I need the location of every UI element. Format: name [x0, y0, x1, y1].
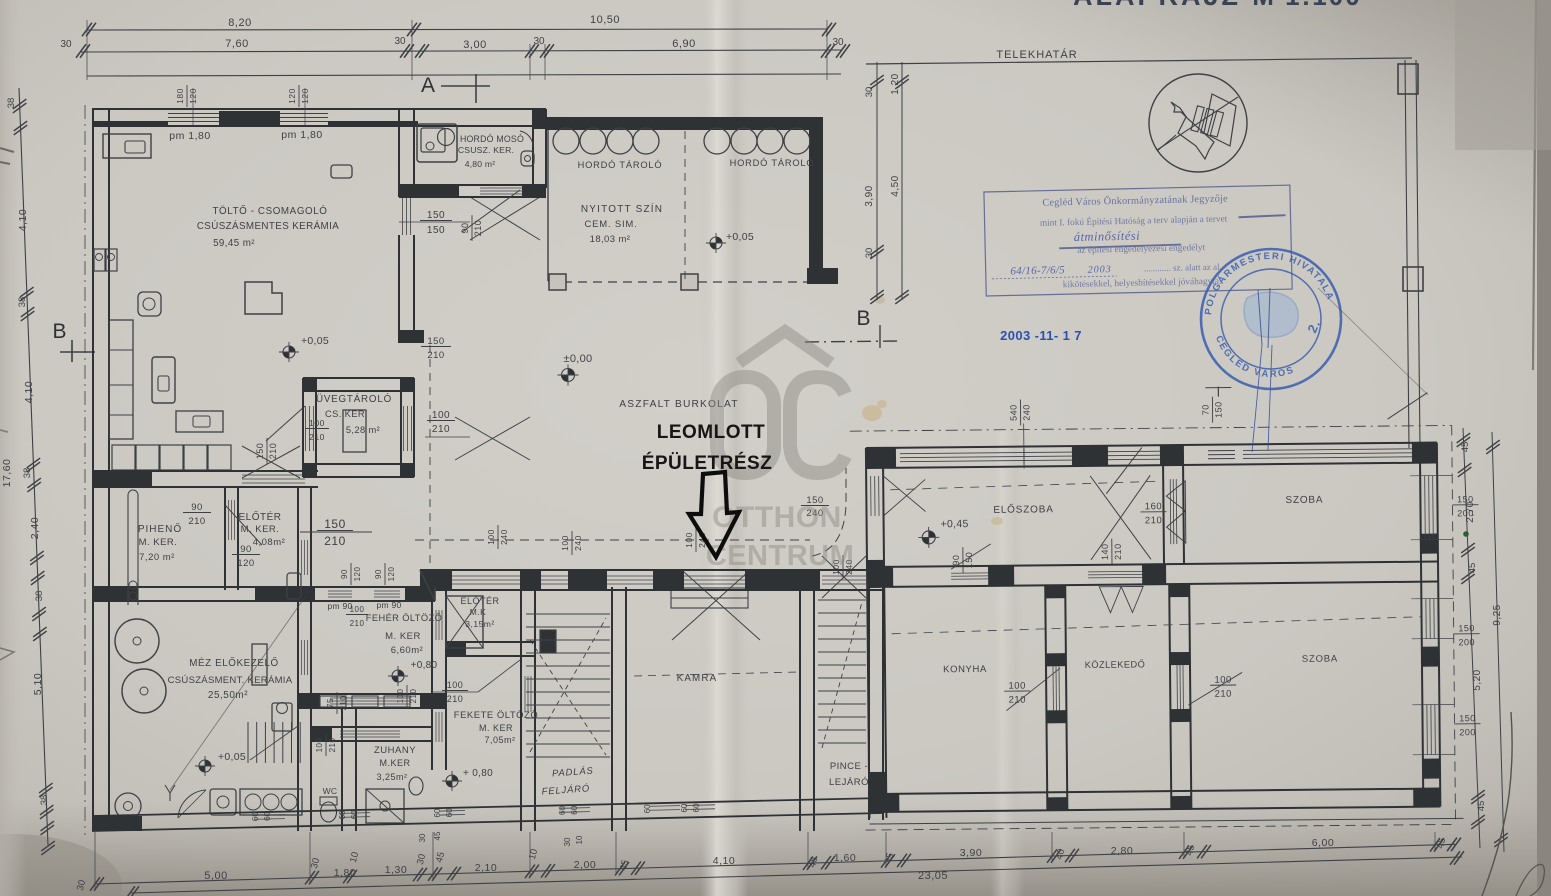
svg-text:100: 100	[309, 418, 325, 428]
svg-text:............ sz. alatt az al: ............ sz. alatt az al	[1144, 262, 1220, 274]
svg-text:átminősítési: átminősítési	[1074, 228, 1141, 244]
svg-text:2003 -11- 1 7: 2003 -11- 1 7	[1000, 328, 1082, 343]
svg-text:2003: 2003	[1088, 264, 1112, 276]
svg-text:60: 60	[643, 804, 652, 813]
svg-text:30: 30	[864, 87, 875, 98]
svg-text:210: 210	[188, 516, 205, 527]
svg-text:60: 60	[445, 808, 454, 817]
svg-text:60: 60	[558, 806, 567, 815]
svg-text:ALAPRAJZ: ALAPRAJZ	[1073, 0, 1241, 11]
svg-text:CENTRUM: CENTRUM	[706, 540, 855, 572]
svg-text:WC: WC	[323, 786, 338, 796]
svg-text:100: 100	[432, 410, 450, 421]
svg-text:120: 120	[237, 558, 254, 569]
svg-text:5,28 m²: 5,28 m²	[346, 425, 380, 435]
svg-text:38: 38	[22, 468, 33, 479]
svg-text:6,00: 6,00	[1312, 837, 1334, 849]
svg-text:TÖLTŐ - CSOMAGOLÓ: TÖLTŐ - CSOMAGOLÓ	[212, 206, 327, 217]
svg-text:100: 100	[560, 535, 570, 551]
svg-text:7,05m²: 7,05m²	[484, 735, 515, 745]
svg-text:+0,80: +0,80	[411, 660, 438, 671]
svg-text:4,50: 4,50	[890, 175, 901, 196]
svg-text:CS. KER: CS. KER	[325, 409, 365, 419]
svg-text:210: 210	[309, 432, 325, 442]
svg-text:30: 30	[533, 36, 545, 47]
svg-text:45: 45	[433, 831, 442, 840]
svg-text:100: 100	[396, 689, 405, 704]
svg-text:100: 100	[684, 532, 694, 548]
svg-text:KONYHA: KONYHA	[943, 664, 987, 675]
svg-text:210: 210	[268, 443, 278, 460]
svg-text:240: 240	[1021, 404, 1031, 421]
svg-text:60: 60	[680, 803, 689, 812]
svg-text:140: 140	[1100, 543, 1110, 560]
svg-text:+ 0,80: + 0,80	[463, 768, 493, 779]
svg-text:CSÚSZÁSMENTES KERÁMIA: CSÚSZÁSMENTES KERÁMIA	[197, 221, 339, 232]
svg-text:ÉPÜLETRÉSZ: ÉPÜLETRÉSZ	[642, 452, 773, 474]
svg-text:210: 210	[409, 689, 418, 704]
svg-text:90: 90	[374, 569, 383, 579]
svg-text:LEOMLOTT: LEOMLOTT	[657, 422, 765, 443]
svg-text:M. KER.: M. KER.	[241, 524, 280, 535]
svg-text:B: B	[52, 320, 67, 343]
svg-text:SZOBA: SZOBA	[1285, 495, 1323, 506]
svg-text:1,80: 1,80	[334, 867, 356, 879]
svg-text:3,00: 3,00	[463, 39, 486, 51]
svg-text:4,10: 4,10	[713, 855, 735, 867]
svg-text:3,15m²: 3,15m²	[465, 619, 494, 629]
svg-text:100: 100	[1214, 675, 1231, 686]
svg-text:150: 150	[1213, 401, 1223, 418]
svg-text:M 1:100: M 1:100	[1252, 0, 1361, 11]
svg-text:M. KER: M. KER	[385, 631, 421, 642]
svg-text:60: 60	[338, 810, 347, 819]
svg-text:210: 210	[1009, 695, 1026, 706]
svg-text:8,20: 8,20	[228, 17, 251, 29]
svg-text:59,45 m²: 59,45 m²	[213, 238, 255, 249]
svg-text:+0,05: +0,05	[301, 335, 329, 347]
svg-text:210: 210	[328, 738, 337, 753]
svg-text:160: 160	[1145, 501, 1162, 512]
svg-text:18,03 m²: 18,03 m²	[590, 234, 631, 245]
svg-text:45: 45	[1467, 563, 1478, 574]
svg-text:180: 180	[175, 88, 185, 104]
svg-text:TELEKHATÁR: TELEKHATÁR	[996, 48, 1077, 61]
svg-text:120: 120	[287, 88, 297, 104]
svg-text:+0,05: +0,05	[726, 231, 754, 243]
svg-text:60: 60	[570, 805, 579, 814]
svg-text:38: 38	[6, 98, 17, 109]
svg-text:CSUSZ. KER.: CSUSZ. KER.	[458, 145, 514, 155]
svg-text:HORDÓ TÁROLÓ: HORDÓ TÁROLÓ	[730, 158, 815, 168]
svg-text:150: 150	[1457, 494, 1474, 504]
svg-text:210: 210	[339, 696, 348, 711]
svg-text:25,50m²: 25,50m²	[208, 690, 248, 701]
svg-text:FEKETE ÖLTÖZŐ: FEKETE ÖLTÖZŐ	[454, 710, 538, 721]
svg-text:30: 30	[864, 248, 875, 259]
svg-text:150: 150	[1458, 623, 1475, 633]
svg-text:CEM. SIM.: CEM. SIM.	[584, 219, 637, 230]
svg-text:3,25m²: 3,25m²	[376, 772, 407, 782]
svg-text:4,80 m²: 4,80 m²	[465, 159, 496, 169]
svg-text:2,10: 2,10	[475, 862, 497, 874]
svg-text:45: 45	[1460, 442, 1471, 453]
svg-text:2,00: 2,00	[574, 859, 596, 871]
svg-text:30: 30	[832, 37, 844, 48]
svg-text:64/16-7/6/5: 64/16-7/6/5	[1010, 264, 1065, 277]
svg-text:4,10: 4,10	[17, 209, 29, 231]
svg-text:FEHÉR ÖLTÖZŐ: FEHÉR ÖLTÖZŐ	[366, 613, 442, 623]
svg-text:PIHENŐ: PIHENŐ	[138, 521, 182, 535]
svg-text:7,20 m²: 7,20 m²	[139, 552, 175, 563]
svg-text:ZUHANY: ZUHANY	[374, 745, 416, 756]
svg-text:3,90: 3,90	[864, 185, 875, 206]
svg-text:+0,05: +0,05	[218, 751, 246, 763]
svg-text:2,40: 2,40	[29, 517, 41, 539]
svg-text:100: 100	[315, 738, 324, 753]
svg-text:A: A	[421, 74, 435, 97]
svg-text:120: 120	[387, 567, 396, 582]
svg-text:MÉZ ELŐKEZELŐ: MÉZ ELŐKEZELŐ	[189, 658, 278, 669]
svg-text:5,20: 5,20	[1472, 669, 1483, 690]
svg-text:90: 90	[240, 544, 252, 555]
svg-text:7,60: 7,60	[225, 38, 248, 50]
svg-text:LEJÁRÓ: LEJÁRÓ	[829, 777, 869, 788]
svg-text:3,90: 3,90	[960, 847, 982, 859]
svg-text:120: 120	[353, 567, 362, 582]
svg-text:23,05: 23,05	[918, 870, 948, 882]
svg-text:210: 210	[350, 619, 365, 628]
svg-text:10,50: 10,50	[590, 14, 620, 26]
svg-text:6,90: 6,90	[672, 38, 695, 50]
svg-text:38: 38	[34, 591, 45, 602]
svg-text:210: 210	[432, 424, 450, 435]
svg-text:B: B	[856, 307, 871, 330]
svg-text:NYITOTT SZÍN: NYITOTT SZÍN	[581, 202, 663, 215]
svg-text:90: 90	[460, 222, 470, 233]
svg-text:75: 75	[326, 698, 335, 708]
svg-text:100: 100	[447, 680, 464, 690]
svg-text:30: 30	[60, 39, 72, 50]
svg-text:60: 60	[350, 810, 359, 819]
svg-text:100: 100	[486, 529, 496, 545]
svg-text:240: 240	[573, 535, 583, 551]
svg-text:HORDÓ MOSÓ: HORDÓ MOSÓ	[460, 134, 524, 144]
svg-text:4,08m²: 4,08m²	[253, 537, 286, 548]
svg-text:1,30: 1,30	[385, 864, 407, 876]
svg-text:+0,45: +0,45	[941, 518, 969, 530]
svg-text:pm 1,80: pm 1,80	[169, 130, 210, 142]
svg-text:200: 200	[1457, 508, 1474, 518]
svg-text:210: 210	[1215, 689, 1232, 700]
svg-text:210: 210	[324, 534, 346, 548]
svg-text:90: 90	[191, 502, 203, 513]
svg-text:PINCE -: PINCE -	[830, 761, 868, 772]
svg-text:M. KER: M. KER	[479, 723, 513, 733]
svg-text:200: 200	[1458, 637, 1475, 647]
svg-text:200: 200	[1459, 727, 1476, 737]
svg-text:17,60: 17,60	[1, 459, 13, 488]
svg-text:KÖZLEKEDŐ: KÖZLEKEDŐ	[1085, 659, 1146, 670]
svg-text:30: 30	[394, 36, 406, 47]
svg-text:45: 45	[1476, 801, 1487, 812]
svg-text:SZOBA: SZOBA	[1302, 654, 1338, 665]
svg-text:1,60: 1,60	[834, 852, 856, 864]
svg-text:540: 540	[1008, 404, 1018, 421]
svg-text:5,00: 5,00	[204, 870, 227, 882]
svg-text:90: 90	[340, 569, 349, 579]
svg-text:10: 10	[575, 835, 584, 844]
svg-text:CSÚSZÁSMENT. KERÁMIA: CSÚSZÁSMENT. KERÁMIA	[168, 675, 293, 686]
svg-text:210: 210	[447, 694, 464, 704]
svg-text:100: 100	[1008, 681, 1025, 692]
svg-text:150: 150	[427, 225, 445, 236]
svg-text:38: 38	[17, 297, 28, 308]
svg-text:1,20: 1,20	[890, 73, 901, 94]
svg-text:60: 60	[433, 808, 442, 817]
svg-text:2,80: 2,80	[1111, 845, 1133, 857]
svg-text:210: 210	[473, 220, 483, 237]
svg-text:150: 150	[324, 517, 346, 531]
svg-text:150: 150	[427, 210, 445, 221]
svg-text:100: 100	[350, 605, 365, 614]
svg-text:60: 60	[263, 811, 272, 820]
svg-text:pm 1,80: pm 1,80	[281, 129, 322, 141]
svg-text:210: 210	[1113, 543, 1123, 560]
svg-text:±0,00: ±0,00	[564, 353, 593, 365]
svg-text:pm 90: pm 90	[376, 600, 401, 610]
svg-text:38: 38	[39, 795, 50, 806]
svg-text:30: 30	[418, 833, 427, 842]
svg-text:5,10: 5,10	[32, 673, 44, 695]
svg-text:9,25: 9,25	[1492, 604, 1503, 625]
svg-text:M. KER.: M. KER.	[139, 537, 178, 548]
svg-text:ÜVEGTÁROLÓ: ÜVEGTÁROLÓ	[316, 394, 392, 405]
svg-text:60: 60	[251, 812, 260, 821]
svg-text:60: 60	[692, 803, 701, 812]
svg-text:ELŐTÉR: ELŐTÉR	[238, 509, 281, 523]
svg-text:4,10: 4,10	[23, 381, 35, 403]
svg-text:150: 150	[964, 552, 974, 569]
svg-text:210: 210	[1145, 515, 1162, 526]
svg-text:HORDÓ TÁROLÓ: HORDÓ TÁROLÓ	[578, 160, 663, 170]
svg-text:70: 70	[1200, 404, 1210, 415]
svg-text:6,60m²: 6,60m²	[391, 645, 424, 656]
svg-text:240: 240	[499, 529, 509, 545]
svg-text:150: 150	[1459, 713, 1476, 723]
svg-text:30: 30	[563, 837, 572, 846]
svg-text:150: 150	[255, 443, 265, 460]
svg-text:M.KER: M.KER	[379, 758, 410, 768]
svg-text:90: 90	[951, 555, 961, 566]
